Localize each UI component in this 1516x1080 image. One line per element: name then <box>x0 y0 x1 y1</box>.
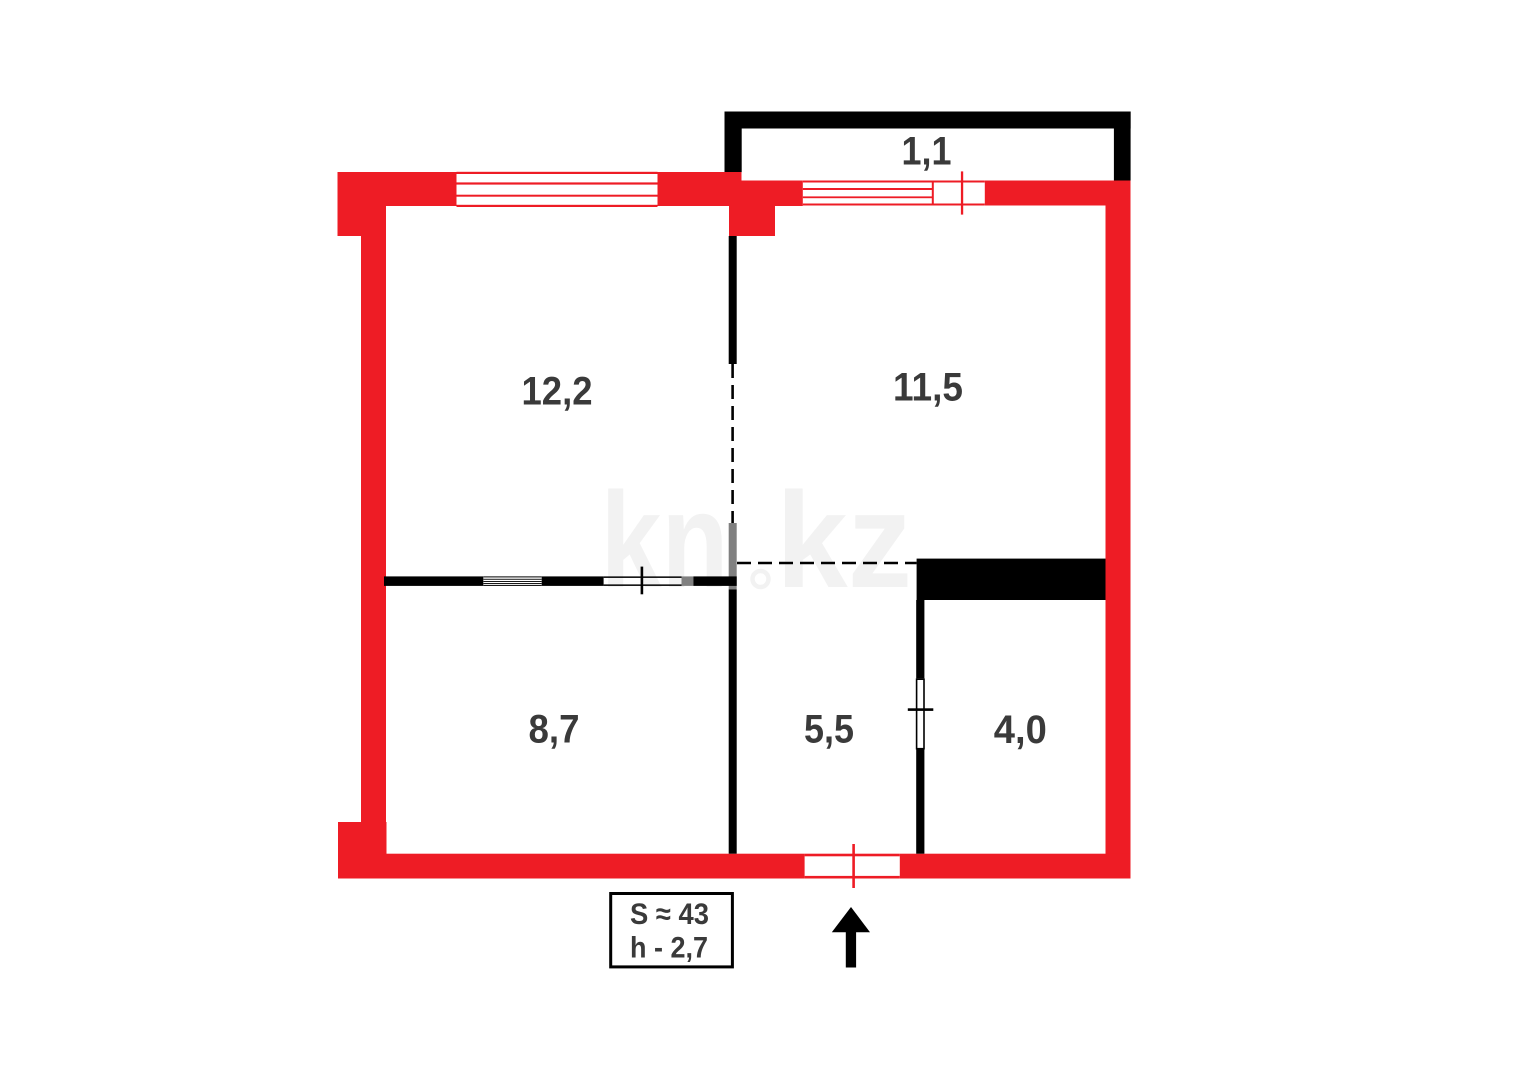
svg-text:4,0: 4,0 <box>994 708 1047 752</box>
svg-text:h - 2,7: h - 2,7 <box>630 932 708 965</box>
svg-text:S ≈ 43: S ≈ 43 <box>630 898 709 931</box>
svg-text:1,1: 1,1 <box>902 130 952 174</box>
svg-text:12,2: 12,2 <box>522 370 593 414</box>
svg-text:kn: kn <box>601 464 729 616</box>
svg-text:5,5: 5,5 <box>804 707 854 751</box>
svg-text:8,7: 8,7 <box>529 707 580 751</box>
svg-text:kz: kz <box>776 464 912 616</box>
svg-text:11,5: 11,5 <box>893 366 963 410</box>
